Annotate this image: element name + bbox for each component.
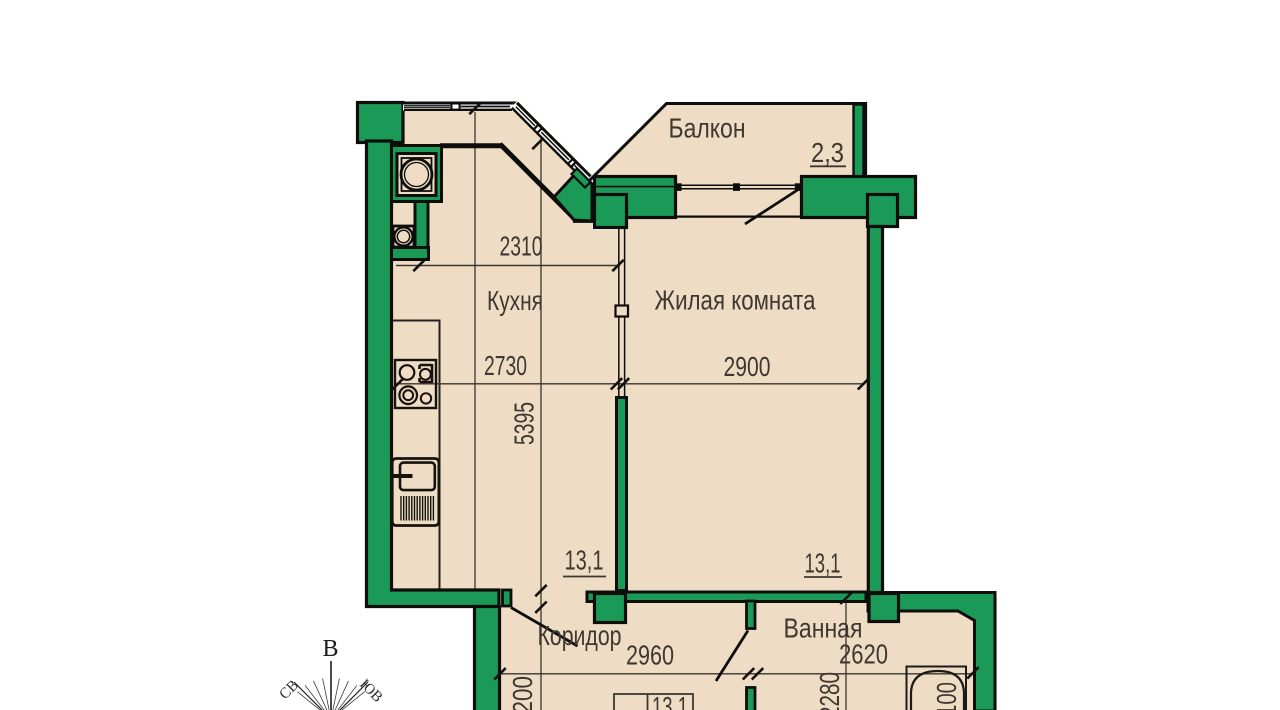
svg-text:13,1: 13,1 [565,545,604,576]
svg-text:Коридор: Коридор [538,620,622,651]
svg-text:Кухня: Кухня [487,285,543,316]
svg-text:2960: 2960 [626,640,674,671]
svg-text:5395: 5395 [509,402,540,445]
svg-text:2900: 2900 [724,351,771,382]
svg-text:2310: 2310 [500,231,543,262]
svg-text:Жилая комната: Жилая комната [655,285,816,316]
svg-text:В: В [322,636,338,662]
svg-text:2,3: 2,3 [811,137,844,168]
svg-text:2730: 2730 [484,350,527,381]
svg-text:2620: 2620 [839,639,888,670]
svg-text:1200: 1200 [507,676,538,710]
svg-text:2280: 2280 [814,672,845,710]
svg-text:100: 100 [931,682,962,710]
svg-text:Балкон: Балкон [669,112,746,143]
svg-text:13,1: 13,1 [805,548,841,579]
svg-text:13,1: 13,1 [652,691,688,710]
